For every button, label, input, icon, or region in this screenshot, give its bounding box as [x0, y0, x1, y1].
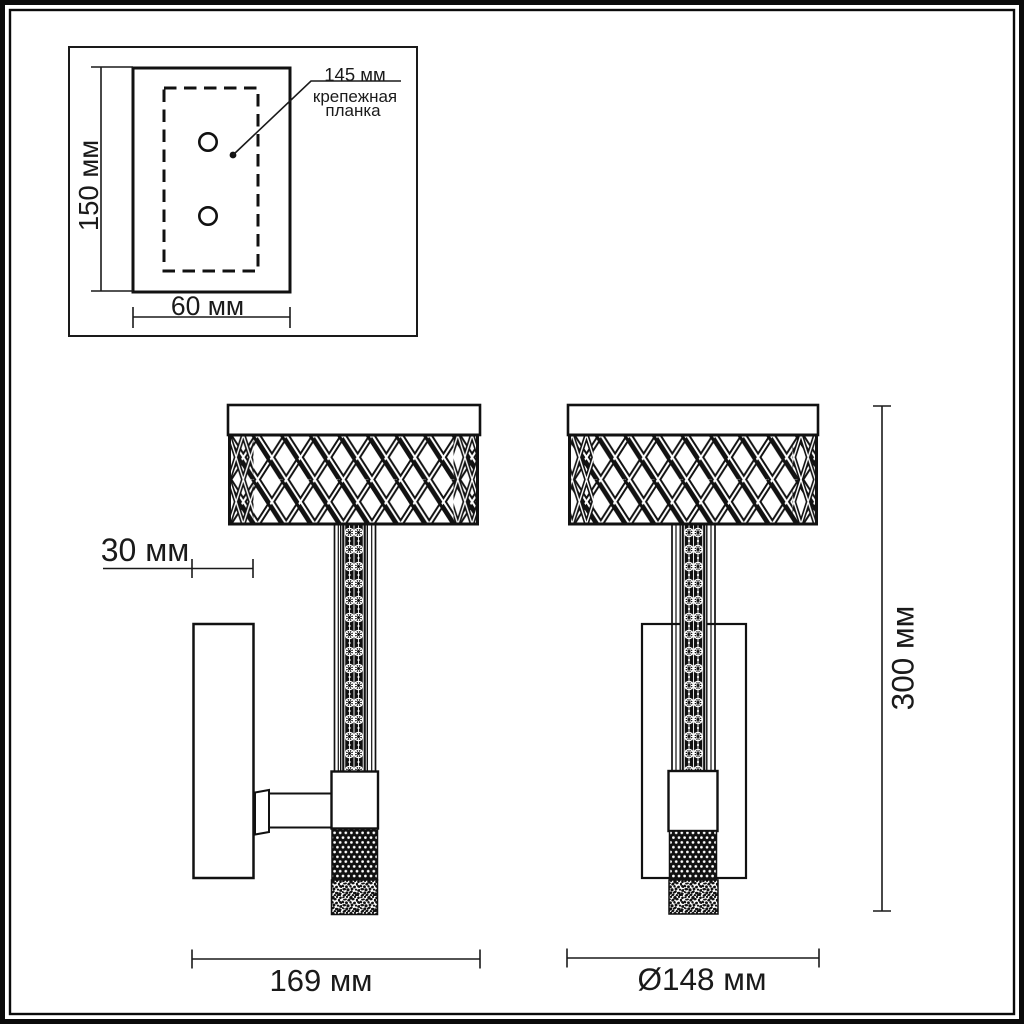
svg-text:169 мм: 169 мм: [270, 963, 373, 998]
svg-text:145 мм: 145 мм: [324, 64, 385, 85]
svg-text:60 мм: 60 мм: [171, 291, 244, 321]
svg-text:планка: планка: [325, 101, 381, 120]
svg-text:300 мм: 300 мм: [885, 606, 921, 711]
svg-text:30 мм: 30 мм: [101, 532, 189, 568]
svg-text:Ø148 мм: Ø148 мм: [637, 961, 766, 997]
svg-text:150 мм: 150 мм: [73, 140, 104, 231]
